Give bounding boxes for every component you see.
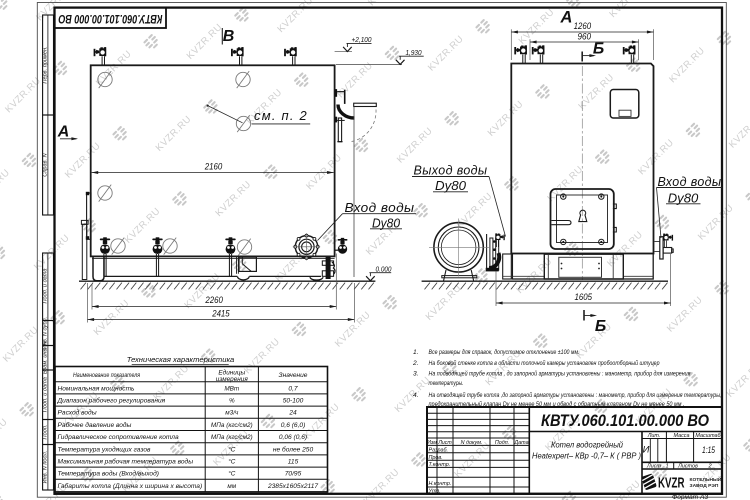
svg-text:KVZR.RU: KVZR.RU (335, 60, 375, 100)
svg-text:А: А (560, 9, 573, 27)
svg-text:24: 24 (288, 410, 297, 417)
svg-text:%: % (229, 398, 235, 405)
svg-text:Н.контр.: Н.контр. (429, 481, 452, 487)
svg-text:Значение: Значение (279, 372, 308, 379)
svg-text:KVZR.RU: KVZR.RU (273, 244, 313, 284)
svg-text:0,7: 0,7 (288, 385, 297, 392)
svg-text:KVZR.RU: KVZR.RU (185, 22, 225, 62)
svg-text:Подп.: Подп. (42, 425, 48, 440)
svg-text:KVZR.RU: KVZR.RU (607, 0, 647, 20)
svg-text:Выход воды: Выход воды (414, 163, 488, 178)
svg-text:KVZR.RU: KVZR.RU (154, 114, 194, 154)
svg-text:Dy80: Dy80 (372, 216, 400, 230)
svg-text:0.000: 0.000 (376, 264, 392, 273)
svg-text:3.: 3. (413, 370, 419, 377)
svg-text:KVZR.RU: KVZR.RU (1, 324, 41, 364)
svg-text:70/95: 70/95 (285, 471, 302, 478)
svg-text:2385х1605х2117: 2385х1605х2117 (267, 483, 318, 490)
svg-text:Т.контр.: Т.контр. (429, 462, 451, 468)
svg-text:KVZR.RU: KVZR.RU (725, 360, 750, 400)
svg-text:KVZR.RU: KVZR.RU (665, 294, 705, 334)
svg-text:KVZR.RU: KVZR.RU (486, 99, 526, 139)
svg-text:Справ. N: Справ. N (42, 152, 48, 176)
svg-text:4.: 4. (413, 392, 419, 399)
svg-text:KVZR.RU: KVZR.RU (424, 283, 464, 323)
svg-text:В: В (223, 28, 235, 45)
svg-text:Номинальная мощность: Номинальная мощность (58, 385, 136, 392)
svg-text:Наименование показателя: Наименование показателя (73, 372, 140, 379)
svg-text:Вход воды: Вход воды (658, 174, 722, 189)
svg-text:Масса: Масса (674, 433, 690, 439)
svg-text:2.: 2. (412, 360, 419, 367)
svg-text:Диапазон рабочего регулировани: Диапазон рабочего регулирования (57, 397, 166, 405)
svg-text:115: 115 (288, 459, 299, 466)
svg-text:Листов: Листов (677, 464, 698, 470)
svg-text:На отводящей трубе котла ,до з: На отводящей трубе котла ,до запорной ар… (429, 391, 722, 399)
svg-text:0,06 (0,6): 0,06 (0,6) (279, 434, 307, 441)
svg-text:KVZR.RU: KVZR.RU (395, 125, 435, 165)
svg-text:2260: 2260 (205, 295, 224, 306)
svg-text:KVZR.RU: KVZR.RU (727, 110, 750, 150)
svg-text:KVZR.RU: KVZR.RU (696, 202, 736, 242)
svg-text:KVZR.RU: KVZR.RU (636, 137, 676, 177)
svg-text:Heatexpert– КВр -0,7– К ( РВР: Heatexpert– КВр -0,7– К ( РВР ) (532, 451, 641, 461)
svg-text:KVZR.RU: KVZR.RU (302, 401, 342, 441)
svg-text:Лист: Лист (646, 464, 661, 470)
svg-text:KVZR.RU: KVZR.RU (275, 0, 315, 35)
svg-text:1605: 1605 (575, 292, 593, 303)
svg-text:Б: Б (595, 318, 606, 335)
svg-text:Dy80: Dy80 (435, 179, 466, 193)
svg-text:1:15: 1:15 (702, 445, 715, 456)
svg-text:1: 1 (665, 464, 668, 470)
svg-text:Максимальная рабочая температу: Максимальная рабочая температура воды (58, 458, 194, 466)
svg-text:KVZR.RU: KVZR.RU (426, 33, 466, 73)
svg-text:KVZR.RU: KVZR.RU (242, 336, 282, 376)
svg-text:KVZR.RU: KVZR.RU (333, 309, 373, 349)
svg-text:Взам. инв. N: Взам. инв. N (42, 340, 48, 374)
svg-text:Лист: Лист (437, 440, 452, 446)
svg-text:2415: 2415 (211, 308, 230, 319)
svg-text:Dy80: Dy80 (668, 191, 699, 205)
svg-text:+2,100: +2,100 (352, 35, 373, 44)
svg-text:Изм: Изм (427, 440, 437, 446)
svg-text:не более 250: не более 250 (273, 445, 314, 453)
svg-text:960: 960 (578, 32, 592, 43)
svg-text:МПа (кгс/см2): МПа (кгс/см2) (211, 434, 253, 441)
svg-text:На подводящей трубе котла , д: На подводящей трубе котла , до запорной … (429, 369, 691, 377)
svg-text:KVZR.RU: KVZR.RU (517, 7, 557, 47)
svg-text:KVZR: KVZR (658, 474, 685, 491)
svg-text:KVZR.RU: KVZR.RU (667, 45, 707, 85)
svg-text:°С: °С (228, 445, 236, 453)
svg-text:1,930: 1,930 (406, 48, 423, 57)
svg-text:температуры.: температуры. (429, 380, 464, 387)
svg-text:KVZR.RU: KVZR.RU (32, 232, 72, 272)
svg-text:Утв.: Утв. (428, 488, 441, 494)
svg-text:мм: мм (227, 483, 236, 490)
svg-text:МВт: МВт (224, 385, 240, 392)
svg-text:см. п. 2: см. п. 2 (254, 109, 308, 123)
svg-text:50-100: 50-100 (283, 398, 304, 405)
svg-text:Перв. примен.: Перв. примен. (42, 46, 48, 83)
svg-text:измерения: измерения (216, 376, 249, 383)
svg-text:Рабочее давление воды: Рабочее давление воды (58, 421, 132, 429)
svg-text:2160: 2160 (204, 162, 223, 173)
svg-text:На боковой стенке котла в обла: На боковой стенке котла в области топочн… (429, 359, 660, 367)
svg-text:Все размеры для справок, допус: Все размеры для справок, допустимое откл… (429, 348, 580, 356)
svg-text:Формат А3: Формат А3 (672, 494, 708, 500)
svg-text:N докум.: N докум. (461, 440, 483, 446)
svg-text:м3/ч: м3/ч (225, 410, 239, 417)
svg-text:KVZR.RU: KVZR.RU (63, 140, 103, 180)
svg-text:Температура уходящих газов: Температура уходящих газов (58, 445, 151, 453)
svg-text:KVZR.RU: KVZR.RU (362, 467, 402, 500)
svg-text:KVZR.RU: KVZR.RU (213, 179, 253, 219)
svg-text:И: И (643, 445, 650, 456)
svg-text:KVZR.RU: KVZR.RU (455, 191, 495, 231)
svg-text:0,6 (6,0): 0,6 (6,0) (281, 422, 306, 429)
svg-text:1.: 1. (413, 349, 419, 356)
svg-text:KVZR.RU: KVZR.RU (0, 416, 10, 456)
svg-text:Разраб.: Разраб. (429, 447, 449, 453)
svg-text:Б: Б (593, 41, 604, 58)
svg-text:Подп. и дата: Подп. и дата (42, 268, 48, 303)
svg-text:Масштаб: Масштаб (695, 433, 721, 439)
svg-text:Подп. и дата: Подп. и дата (42, 377, 48, 412)
svg-text:Габариты котла (Длинна х ширин: Габариты котла (Длинна х ширина х высота… (58, 482, 203, 490)
svg-text:ЗАВОД РЭП: ЗАВОД РЭП (690, 483, 719, 489)
svg-text:KVZR.RU: KVZR.RU (92, 298, 132, 338)
svg-text:МПа (кгс/см2): МПа (кгс/см2) (211, 422, 253, 429)
svg-text:Техническая характеристика: Техническая характеристика (127, 355, 235, 364)
svg-text:Пров.: Пров. (429, 455, 443, 461)
svg-text:°С: °С (228, 458, 236, 466)
svg-text:А: А (57, 124, 70, 141)
svg-text:Дата: Дата (513, 440, 528, 446)
svg-text:Инв. N подл.: Инв. N подл. (42, 451, 48, 484)
svg-text:КВТУ.060.101.00.000 ВО: КВТУ.060.101.00.000 ВО (541, 412, 709, 430)
svg-text:Котел водогрейный: Котел водогрейный (551, 440, 623, 450)
svg-text:КВТУ.060.101.00.000 ВО: КВТУ.060.101.00.000 ВО (58, 12, 162, 24)
svg-text:Температура воды (Вход/выход): Температура воды (Вход/выход) (58, 470, 159, 478)
svg-text:Лит.: Лит. (647, 433, 661, 439)
svg-text:Вход воды: Вход воды (345, 200, 415, 215)
svg-text:Подп.: Подп. (495, 440, 509, 446)
svg-text:Расход воды: Расход воды (58, 409, 97, 417)
svg-text:KVZR.RU: KVZR.RU (0, 167, 12, 207)
svg-text:Гидравлическое сопротивление к: Гидравлическое сопротивление котла (58, 433, 179, 441)
svg-text:°С: °С (228, 470, 236, 478)
